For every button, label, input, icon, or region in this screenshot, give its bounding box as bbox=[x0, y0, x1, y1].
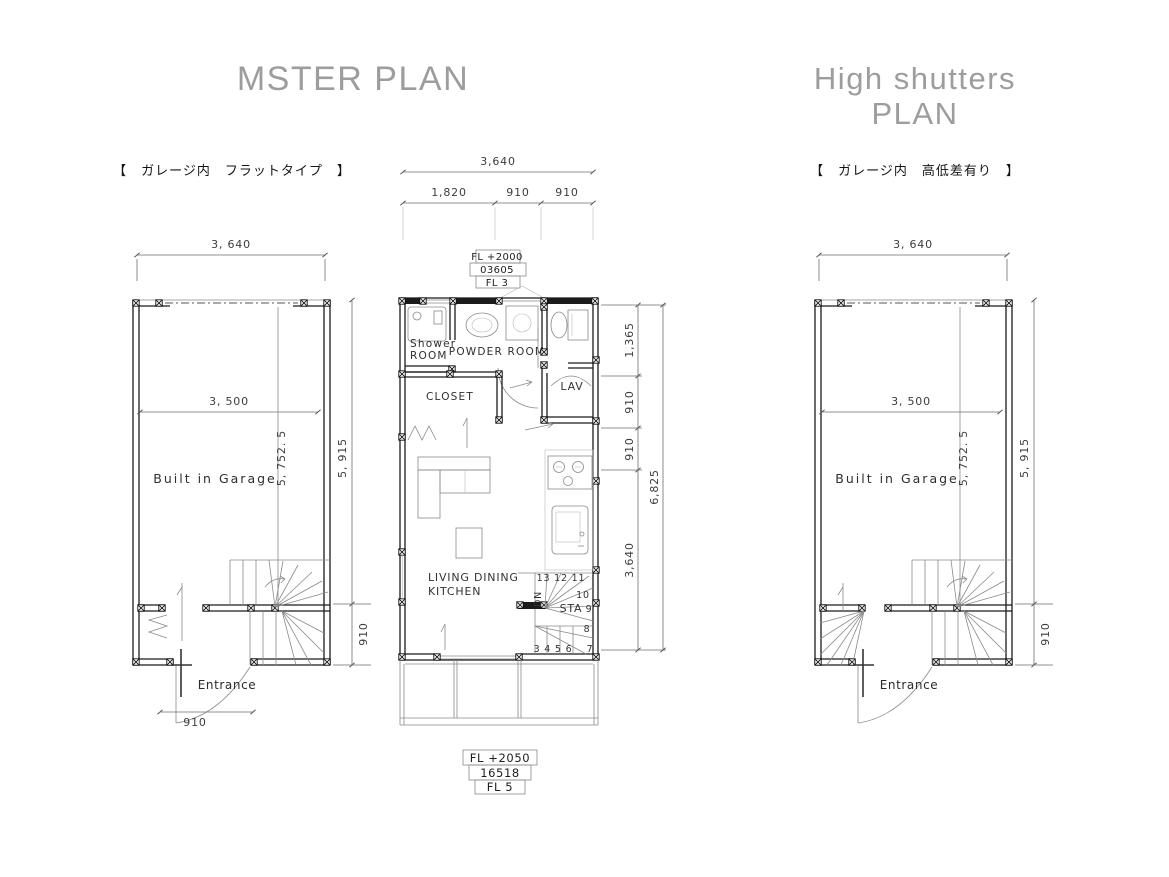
center-kitchen bbox=[545, 450, 593, 570]
tag-top-line2: 03605 bbox=[480, 265, 514, 276]
stair-num-10: 10 bbox=[576, 590, 590, 601]
high-dim-inner-height: 5, 752. 5 bbox=[957, 430, 970, 486]
master-top-dimension: 3, 640 bbox=[134, 238, 327, 281]
washing-machine bbox=[506, 306, 538, 340]
high-top-dimension: 3, 640 bbox=[816, 238, 1009, 281]
floor-plan-sheet: MSTER PLAN High shutters PLAN 【 ガレージ内 フラ… bbox=[0, 0, 1169, 877]
master-dim-inner-height: 5, 752. 5 bbox=[275, 430, 288, 486]
center-living: LIVING DINING KITCHEN bbox=[403, 457, 519, 650]
high-dim-inner-width: 3, 500 bbox=[891, 395, 931, 408]
high-plan-drawing: 3, 640 3, 500 5, 752. 5 Built in Garage bbox=[797, 215, 1067, 745]
tag-top-line3: FL 3 bbox=[486, 278, 508, 289]
center-dim-right-overall: 6,825 bbox=[648, 469, 661, 505]
center-balcony bbox=[400, 660, 598, 725]
center-dim-right-seg2: 910 bbox=[623, 390, 636, 413]
center-stairs: 13 12 11 DN 10 STA 9 8 3 4 5 6 7 bbox=[517, 573, 594, 655]
center-dim-top-seg1: 1,820 bbox=[431, 186, 467, 199]
center-shower-room: Shower ROOM bbox=[405, 304, 456, 372]
center-bottom-tag: FL +2050 16518 FL 5 bbox=[463, 750, 537, 794]
stair-bottom-numbers: 3 4 5 6 bbox=[534, 644, 573, 655]
hall-door-swing bbox=[498, 368, 538, 408]
high-dim-overall-height: 5, 915 bbox=[1018, 438, 1031, 478]
center-dim-right-seg1: 1,365 bbox=[623, 322, 636, 358]
center-dim-top-seg2: 910 bbox=[506, 186, 529, 199]
high-right-dimensions: 5, 915 910 bbox=[1015, 298, 1053, 667]
center-plan-drawing: 3,640 1,820 910 910 FL +2000 03605 FL 3 bbox=[390, 140, 690, 820]
tag-bottom-line3: FL 5 bbox=[487, 780, 513, 794]
master-plan-drawing: 3, 640 3, 500 5, 752. 5 Built in Garage bbox=[115, 215, 385, 745]
stair-top-numbers: 13 12 11 bbox=[537, 573, 586, 584]
center-dim-right-seg3: 910 bbox=[623, 437, 636, 460]
entrance-door-swing bbox=[858, 667, 932, 723]
center-right-dimensions: 1,365 910 910 3,640 6,825 bbox=[601, 303, 666, 652]
master-stairs bbox=[138, 560, 330, 665]
ldk-label-line2: KITCHEN bbox=[428, 585, 481, 598]
tag-bottom-line2: 16518 bbox=[480, 766, 520, 780]
center-hall bbox=[498, 328, 553, 430]
master-right-dimensions: 5, 915 910 bbox=[333, 298, 371, 667]
shower-room-label-line2: ROOM bbox=[410, 350, 448, 362]
tag-top-line1: FL +2000 bbox=[471, 252, 523, 263]
center-dim-top-seg3: 910 bbox=[555, 186, 578, 199]
center-top-dimensions: 3,640 1,820 910 910 bbox=[400, 155, 595, 240]
hanger-pipe-symbol bbox=[408, 426, 436, 440]
high-entrance-label: Entrance bbox=[880, 678, 939, 692]
master-dim-overall-height: 5, 915 bbox=[336, 438, 349, 478]
stair-sta-label: STA bbox=[560, 602, 583, 615]
stair-num-9: 9 bbox=[586, 604, 593, 615]
master-plan-title: MSTER PLAN bbox=[233, 60, 473, 98]
high-shutters-title: High shutters PLAN bbox=[790, 62, 1040, 131]
stair-num-7: 7 bbox=[587, 644, 594, 655]
high-plan-subtitle: 【 ガレージ内 高低差有り 】 bbox=[795, 160, 1035, 179]
tag-bottom-line1: FL +2050 bbox=[470, 751, 530, 765]
center-toilet-room bbox=[541, 304, 588, 355]
master-plan-subtitle: 【 ガレージ内 フラットタイプ 】 bbox=[112, 160, 352, 179]
closet-label: CLOSET bbox=[426, 391, 474, 403]
entrance-door-swing bbox=[176, 667, 250, 723]
ldk-label-line1: LIVING DINING bbox=[428, 571, 519, 584]
sofa-back bbox=[418, 457, 490, 470]
stair-num-8: 8 bbox=[584, 624, 591, 635]
center-dim-top-overall: 3,640 bbox=[480, 155, 516, 168]
master-dim-inner-width: 3, 500 bbox=[209, 395, 249, 408]
master-dim-entrance: 910 bbox=[183, 716, 206, 729]
lav-label: LAV bbox=[560, 380, 583, 393]
center-powder-room: POWDER ROOM bbox=[449, 306, 545, 358]
high-garage-label: Built in Garage bbox=[835, 471, 958, 486]
center-closet: CLOSET bbox=[405, 371, 502, 448]
center-dim-right-seg4: 3,640 bbox=[623, 542, 636, 578]
master-garage-label: Built in Garage bbox=[153, 471, 276, 486]
master-dim-stair-zone: 910 bbox=[357, 622, 370, 645]
master-entrance-label: Entrance bbox=[198, 678, 257, 692]
high-dim-overall-width: 3, 640 bbox=[893, 238, 933, 251]
center-lav-room: LAV bbox=[541, 362, 593, 423]
stair-dn-label: DN bbox=[533, 591, 544, 607]
side-table bbox=[456, 528, 482, 558]
high-shutters-title-line1: High shutters bbox=[790, 62, 1040, 97]
master-dim-overall-width: 3, 640 bbox=[211, 238, 251, 251]
high-stairs bbox=[820, 560, 1012, 665]
center-top-tag: FL +2000 03605 FL 3 bbox=[470, 250, 544, 298]
high-shutters-title-line2: PLAN bbox=[790, 97, 1040, 132]
kitchen-sink bbox=[552, 506, 588, 554]
flex-curtain-symbol bbox=[149, 615, 167, 638]
high-dim-stair-zone: 910 bbox=[1039, 622, 1052, 645]
stove bbox=[548, 456, 592, 489]
high-entrance: Entrance bbox=[853, 649, 938, 723]
powder-room-label: POWDER ROOM bbox=[449, 346, 545, 358]
